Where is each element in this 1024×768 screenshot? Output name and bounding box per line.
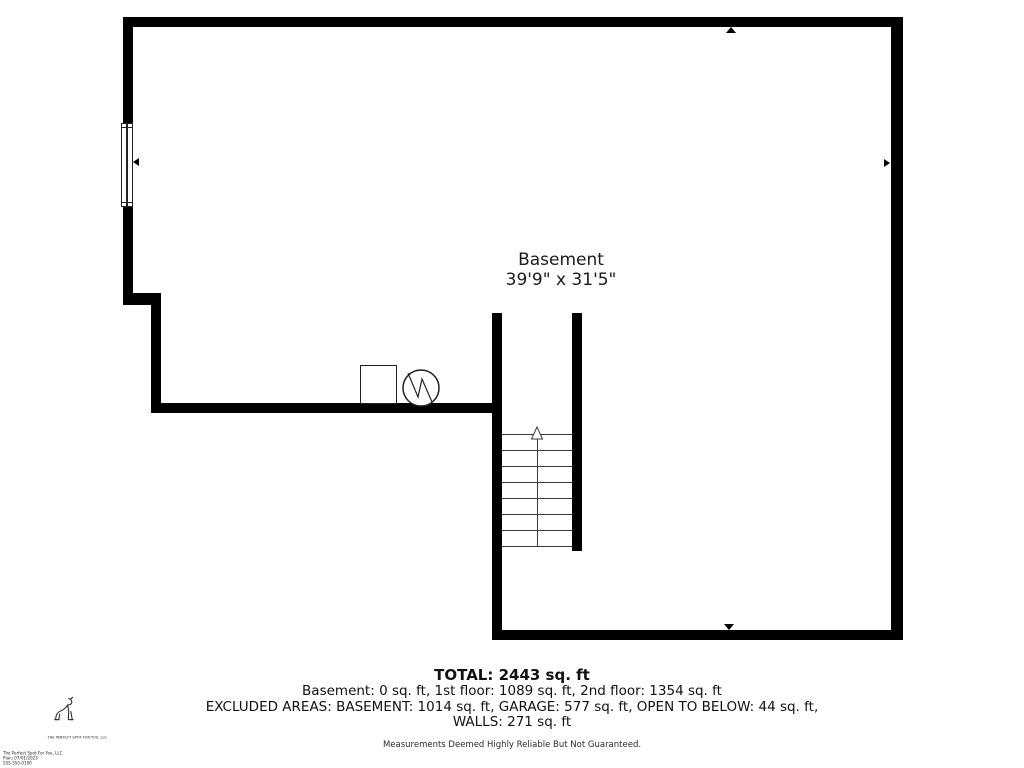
company-name: THE PERFECT SPOT FOR YOU, LLC [48, 736, 107, 740]
wall-stair-right [572, 313, 582, 551]
summary-total: TOTAL: 2443 sq. ft [0, 666, 1024, 684]
company-logo: THE PERFECT SPOT FOR YOU, LLC [38, 696, 88, 745]
credits-line: Plan: 07/01/2023 [3, 756, 62, 759]
room-dimensions: 39'9" x 31'5" [506, 270, 617, 290]
wall-right [891, 17, 903, 640]
stair-centerline [537, 438, 538, 546]
floorplan-canvas: Basement 39'9" x 31'5" TOTAL: 2443 sq. f… [0, 0, 1024, 768]
credits-line: The Perfect Spot For You, LLC [3, 751, 62, 754]
window-mullion-line [127, 124, 128, 206]
window [121, 123, 133, 207]
dog-icon [48, 696, 78, 722]
credits-block: The Perfect Spot For You, LLC Plan: 07/0… [3, 751, 106, 766]
measurement-disclaimer: Measurements Deemed Highly Reliable But … [0, 740, 1024, 750]
wall-tick-marker-left [133, 158, 139, 166]
wall-tick-marker-bottom [724, 624, 734, 630]
water-heater-icon [401, 368, 441, 408]
summary-excluded-areas: EXCLUDED AREAS: BASEMENT: 1014 sq. ft, G… [0, 700, 1024, 716]
room-label: Basement 39'9" x 31'5" [506, 250, 617, 290]
wall-bottom-left-section [151, 403, 498, 413]
wall-step-vertical [151, 293, 161, 413]
wall-tick-marker-top [726, 27, 736, 33]
room-name: Basement [506, 250, 617, 270]
area-summary: TOTAL: 2443 sq. ft Basement: 0 sq. ft, 1… [0, 666, 1024, 750]
stair-up-arrow-icon [530, 426, 544, 440]
wall-left-upper [123, 17, 133, 123]
wall-left-below-window [123, 207, 133, 298]
summary-floors: Basement: 0 sq. ft, 1st floor: 1089 sq. … [0, 684, 1024, 700]
wall-tick-marker-right [884, 159, 890, 167]
wall-top [123, 17, 903, 27]
stair-tread-line [502, 546, 572, 547]
utility-box-icon [360, 365, 397, 404]
wall-stair-left [492, 313, 502, 640]
summary-walls: WALLS: 271 sq. ft [0, 715, 1024, 731]
wall-bottom-right-section [492, 630, 903, 640]
credits-line: 555-555-0100 [3, 761, 62, 764]
